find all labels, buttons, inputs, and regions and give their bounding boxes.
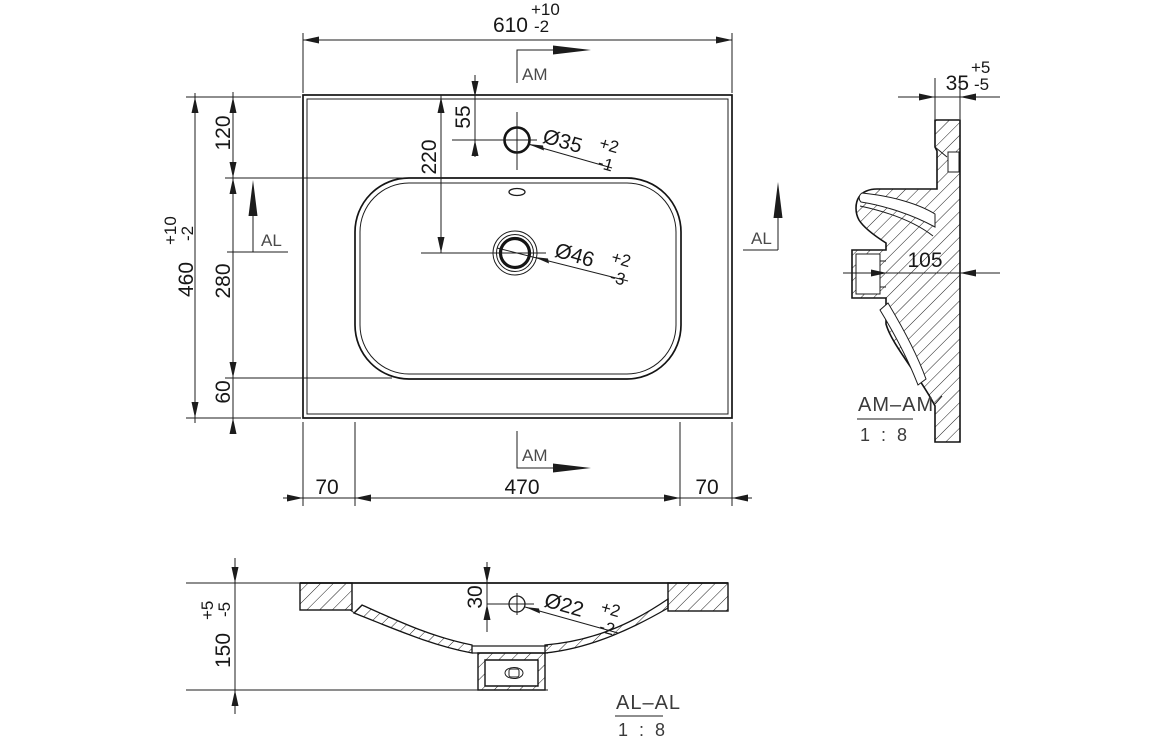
bowl-outline-inner [360,183,676,374]
dim-drain-offset: 220 [418,139,441,174]
al-section-title: AL–AL [616,692,681,714]
overflow-slot [509,189,525,196]
cut-label-al-left: AL [261,231,282,250]
dim-seg-60: 60 [212,380,235,403]
dim-seg-120: 120 [212,115,235,150]
dim-bottom-470: 470 [504,476,539,499]
label-overflow-hole: Ø22 [542,589,587,622]
al-right-ledge [668,583,728,611]
cut-label-al-right: AL [751,229,772,248]
am-rim-groove [948,152,959,172]
section-am-view: 35 -5 +5 105 AM–AM 1 : 8 [843,58,1000,445]
dim-al-height-plus: +5 [198,601,217,620]
dim-height-minus: -2 [178,226,197,241]
label-faucet-hole: Ø35 [540,125,585,158]
al-left-ledge [300,583,352,610]
plan-view [303,95,732,418]
label-drain-hole: Ø46 [552,239,597,272]
cut-label-am-top: AM [522,65,548,84]
drawing-sheet: 610 -2 +10 460 -2 +10 120 280 60 [0,0,1156,742]
dim-am-rim-plus: +5 [971,58,990,77]
dim-am-rim-value: 35 [946,72,969,95]
label-drain-minus: -3 [608,267,628,289]
dim-faucet-offset: 55 [452,105,475,128]
al-shell-left [354,605,472,653]
dim-bottom-70-left: 70 [315,476,338,499]
label-faucet-minus: -1 [596,153,616,175]
al-section-scale: 1 : 8 [618,720,668,740]
dim-seg-280: 280 [212,263,235,298]
label-overflow-minus: -2 [597,617,617,639]
dim-bottom-70-right: 70 [695,476,718,499]
dim-height-plus: +10 [161,216,180,245]
am-section-scale: 1 : 8 [860,425,910,445]
dim-width-minus: -2 [534,17,549,36]
am-section-title: AM–AM [858,394,934,416]
dim-am-rim-minus: -5 [974,75,989,94]
cut-label-am-bottom: AM [522,446,548,465]
bowl-outline-outer [355,178,681,379]
dim-height-value: 460 [175,262,198,297]
dim-width-value: 610 [493,14,528,37]
dim-width-plus: +10 [531,0,560,19]
dim-al-height-minus: -5 [215,602,234,617]
dim-am-depth: 105 [907,249,942,272]
dim-al-overflow-offset: 30 [464,585,487,608]
section-al-view: 150 -5 +5 30 Ø22 +2 -2 AL–AL 1 : 8 [186,558,728,740]
dim-al-height-value: 150 [212,633,235,668]
section-cut-markers: AM AM AL AL [227,46,783,473]
